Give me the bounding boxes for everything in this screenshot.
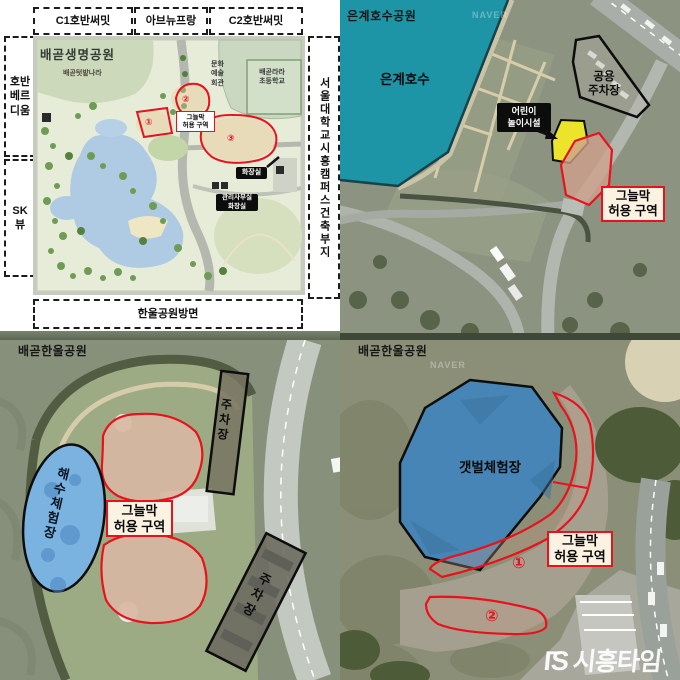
building-roof xyxy=(168,496,208,522)
neighbor-c1-hoban: C1호반써밋 xyxy=(33,7,133,35)
culture-hall-label: 문화 예술 회관 xyxy=(211,60,224,88)
plan-zone-marker-1: ① xyxy=(145,117,153,128)
mudflat-label: 갯벌체험장 xyxy=(435,456,545,476)
plan-zone-label: 그늘막 허용 구역 xyxy=(176,111,215,132)
plan-zone-marker-2: ② xyxy=(182,94,190,105)
allowed-zone-north xyxy=(102,414,203,502)
siheung-times-watermark: ΓS 시흥타임즈 xyxy=(538,642,680,680)
satellite-sliver-bottom xyxy=(0,331,340,340)
neighbor-c2-hoban: C2호반써밋 xyxy=(209,7,303,35)
school-label: 배곧라라 초등학교 xyxy=(249,68,295,87)
mud-zone-marker-1: ① xyxy=(512,553,526,573)
hanul-mud-satellite-art xyxy=(340,340,680,680)
logo-brand-text: 시흥타임즈 xyxy=(567,642,680,680)
hanul-sea-park-name: 배곧한울공원 xyxy=(18,342,87,359)
eungye-lake-name: 은계호수 xyxy=(380,68,430,88)
naver-watermark: NAVER xyxy=(472,10,508,20)
direction-hanul-park: 한울공원방면 xyxy=(33,299,303,329)
mud-zone-marker-2: ② xyxy=(485,606,499,626)
parking-lot-shape xyxy=(273,158,297,192)
plan-quadrant: C1호반써밋 아브뉴프랑 C2호반써밋 호반 베르 디움 SK 뷰 서울대학교시… xyxy=(0,0,340,340)
naver-watermark: NAVER xyxy=(430,360,466,370)
neighbor-hoban-verdium: 호반 베르 디움 xyxy=(4,36,36,157)
allowed-zone-south xyxy=(101,534,206,623)
farm-label: 배곧텃밭나라 xyxy=(63,68,102,78)
hanul-mud-quadrant: 배곧한울공원 NAVER 갯벌체험장 ① ② 그늘막 허용 구역 ΓS 시흥타임… xyxy=(340,340,680,680)
neighbor-sk-view: SK 뷰 xyxy=(4,159,36,277)
plan-map: 배곧생명공원 배곧텃밭나라 문화 예술 회관 배곧라라 초등학교 그늘막 허용 … xyxy=(33,36,305,295)
toilet-label: 화장실 xyxy=(236,167,267,179)
shade-zone-map-collage: C1호반써밋 아브뉴프랑 C2호반써밋 호반 베르 디움 SK 뷰 서울대학교시… xyxy=(0,0,680,680)
hanul-mud-park-name: 배곧한울공원 xyxy=(358,342,427,359)
office-toilet-label: 관리사무실 화장실 xyxy=(216,194,258,211)
kids-facility-label: 어린이 놀이시설 xyxy=(497,103,551,132)
eungye-quadrant: 은계호수공원 NAVER 은계호수 어린이 놀이시설 공용 주차장 그늘막 허용… xyxy=(340,0,680,340)
logo-mark-s: S xyxy=(550,648,571,675)
public-parking-label: 공용 주차장 xyxy=(576,71,632,99)
plan-title: 배곧생명공원 xyxy=(40,44,115,63)
hanul-mud-zone-label: 그늘막 허용 구역 xyxy=(547,531,613,567)
eungye-satellite-art xyxy=(340,0,680,340)
hanul-sea-quadrant: 배곧한울공원 해수체험장 주차장 주차장 그늘막 허용 구역 xyxy=(0,340,340,680)
plan-zone-marker-3: ③ xyxy=(227,133,235,144)
eungye-zone-label: 그늘막 허용 구역 xyxy=(601,186,665,222)
neighbor-avenue-france: 아브뉴프랑 xyxy=(134,7,208,35)
neighbor-snu-campus-site: 서울대학교시흥캠퍼스건축부지 xyxy=(308,36,340,299)
eungye-park-name: 은계호수공원 xyxy=(347,7,416,24)
hanul-sea-zone-label: 그늘막 허용 구역 xyxy=(106,500,173,537)
